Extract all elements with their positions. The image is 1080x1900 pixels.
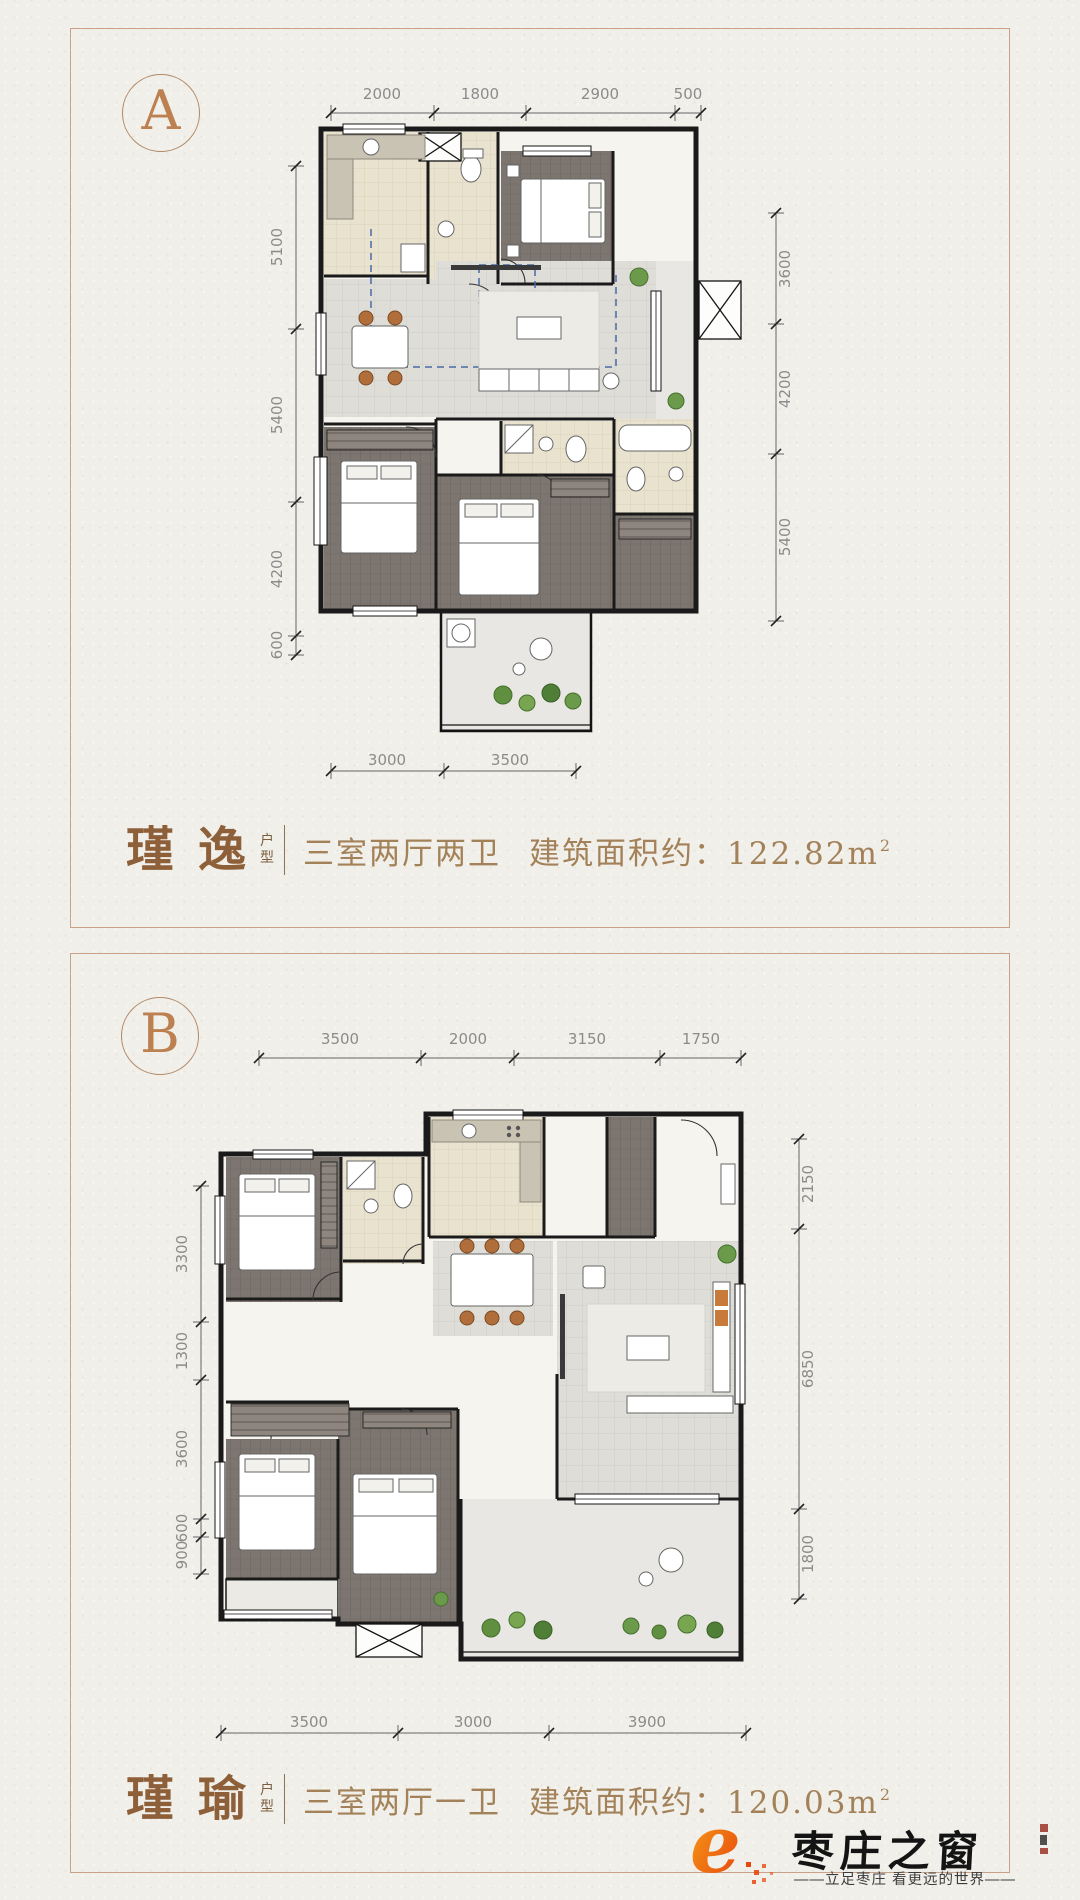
plan-b-layout: 三室两厅一卫 bbox=[303, 1777, 501, 1822]
caption-divider bbox=[284, 1774, 285, 1824]
dim-label: 4200 bbox=[268, 550, 286, 588]
plan-a-area-value: 122.82m bbox=[727, 836, 879, 872]
floor-plan-a bbox=[314, 124, 741, 731]
dim-label: 900 bbox=[173, 1541, 191, 1570]
floor-plan-b bbox=[215, 1110, 745, 1659]
plan-a-badge: A bbox=[122, 74, 200, 152]
plan-a-name: 瑾逸 bbox=[126, 826, 270, 874]
dim-label: 3500 bbox=[321, 1030, 359, 1048]
dim-label: 3150 bbox=[568, 1030, 606, 1048]
plan-b-badge: B bbox=[121, 997, 199, 1075]
logo-tagline: ——立足枣庄 看更远的世界—— bbox=[794, 1868, 1016, 1889]
dim-label: 1300 bbox=[173, 1332, 191, 1370]
logo-e-swirl-icon: e bbox=[688, 1806, 780, 1898]
dim-label: 3300 bbox=[173, 1235, 191, 1273]
type-char-bottom: 型 bbox=[260, 1799, 274, 1816]
dim-label: 1800 bbox=[461, 85, 499, 103]
dim-label: 3600 bbox=[776, 250, 794, 288]
plan-b-letter: B bbox=[140, 1007, 180, 1061]
dim-label: 5100 bbox=[268, 228, 286, 266]
dim-label: 3600 bbox=[173, 1430, 191, 1468]
dim-label: 1800 bbox=[799, 1535, 817, 1573]
ac-ledges bbox=[356, 1624, 422, 1657]
plan-a-letter: A bbox=[142, 84, 181, 138]
dim-label: 4200 bbox=[776, 370, 794, 408]
dim-label: 600 bbox=[173, 1514, 191, 1543]
svg-text:e: e bbox=[690, 1806, 741, 1891]
plan-b-panel: 3500 2000 3150 1750 3300 1300 3600 600 9… bbox=[70, 953, 1010, 1873]
dim-label: 5400 bbox=[268, 396, 286, 434]
dim-label: 500 bbox=[674, 85, 703, 103]
floor-plan-b-svg: 3500 2000 3150 1750 3300 1300 3600 600 9… bbox=[71, 954, 1009, 1754]
type-char-top: 户 bbox=[260, 833, 274, 850]
plan-a-caption: 瑾逸 户 型 三室两厅两卫 建筑面积约： 122.82m 2 bbox=[126, 825, 892, 875]
type-char-bottom: 型 bbox=[260, 850, 274, 867]
type-char-top: 户 bbox=[260, 1782, 274, 1799]
dim-label: 1750 bbox=[682, 1030, 720, 1048]
plan-b-type-label: 户 型 bbox=[260, 1782, 274, 1816]
flyer-page: 2000 1800 2900 500 5100 5400 4200 600 36… bbox=[0, 0, 1080, 1900]
dim-label: 2000 bbox=[363, 85, 401, 103]
dim-label: 600 bbox=[268, 631, 286, 660]
caption-divider bbox=[284, 825, 285, 875]
floor-plan-a-svg: 2000 1800 2900 500 5100 5400 4200 600 36… bbox=[71, 29, 1009, 809]
plan-b-name: 瑾瑜 bbox=[126, 1775, 270, 1823]
dim-label: 3000 bbox=[368, 751, 406, 769]
plan-a-panel: 2000 1800 2900 500 5100 5400 4200 600 36… bbox=[70, 28, 1010, 928]
dim-label: 3900 bbox=[628, 1713, 666, 1731]
dim-label: 3500 bbox=[290, 1713, 328, 1731]
site-logo: e 枣庄之窗 ——立足枣庄 看更远的世界—— bbox=[688, 1800, 1080, 1900]
plan-a-layout: 三室两厅两卫 bbox=[303, 828, 501, 873]
dim-label: 2900 bbox=[581, 85, 619, 103]
entry-corridor bbox=[607, 1117, 655, 1237]
dim-label: 6850 bbox=[799, 1350, 817, 1388]
logo-seal-mark bbox=[1040, 1824, 1048, 1854]
dim-label: 3000 bbox=[454, 1713, 492, 1731]
dim-label: 2150 bbox=[799, 1165, 817, 1203]
plan-a-type-label: 户 型 bbox=[260, 833, 274, 867]
plan-a-area-label: 建筑面积约： bbox=[529, 828, 727, 873]
dim-label: 5400 bbox=[776, 518, 794, 556]
plan-a-area-sup: 2 bbox=[880, 836, 892, 855]
balcony-area bbox=[461, 1499, 741, 1659]
plan-a-description: 三室两厅两卫 建筑面积约： 122.82m 2 bbox=[303, 828, 892, 873]
dim-label: 3500 bbox=[491, 751, 529, 769]
dim-label: 2000 bbox=[449, 1030, 487, 1048]
